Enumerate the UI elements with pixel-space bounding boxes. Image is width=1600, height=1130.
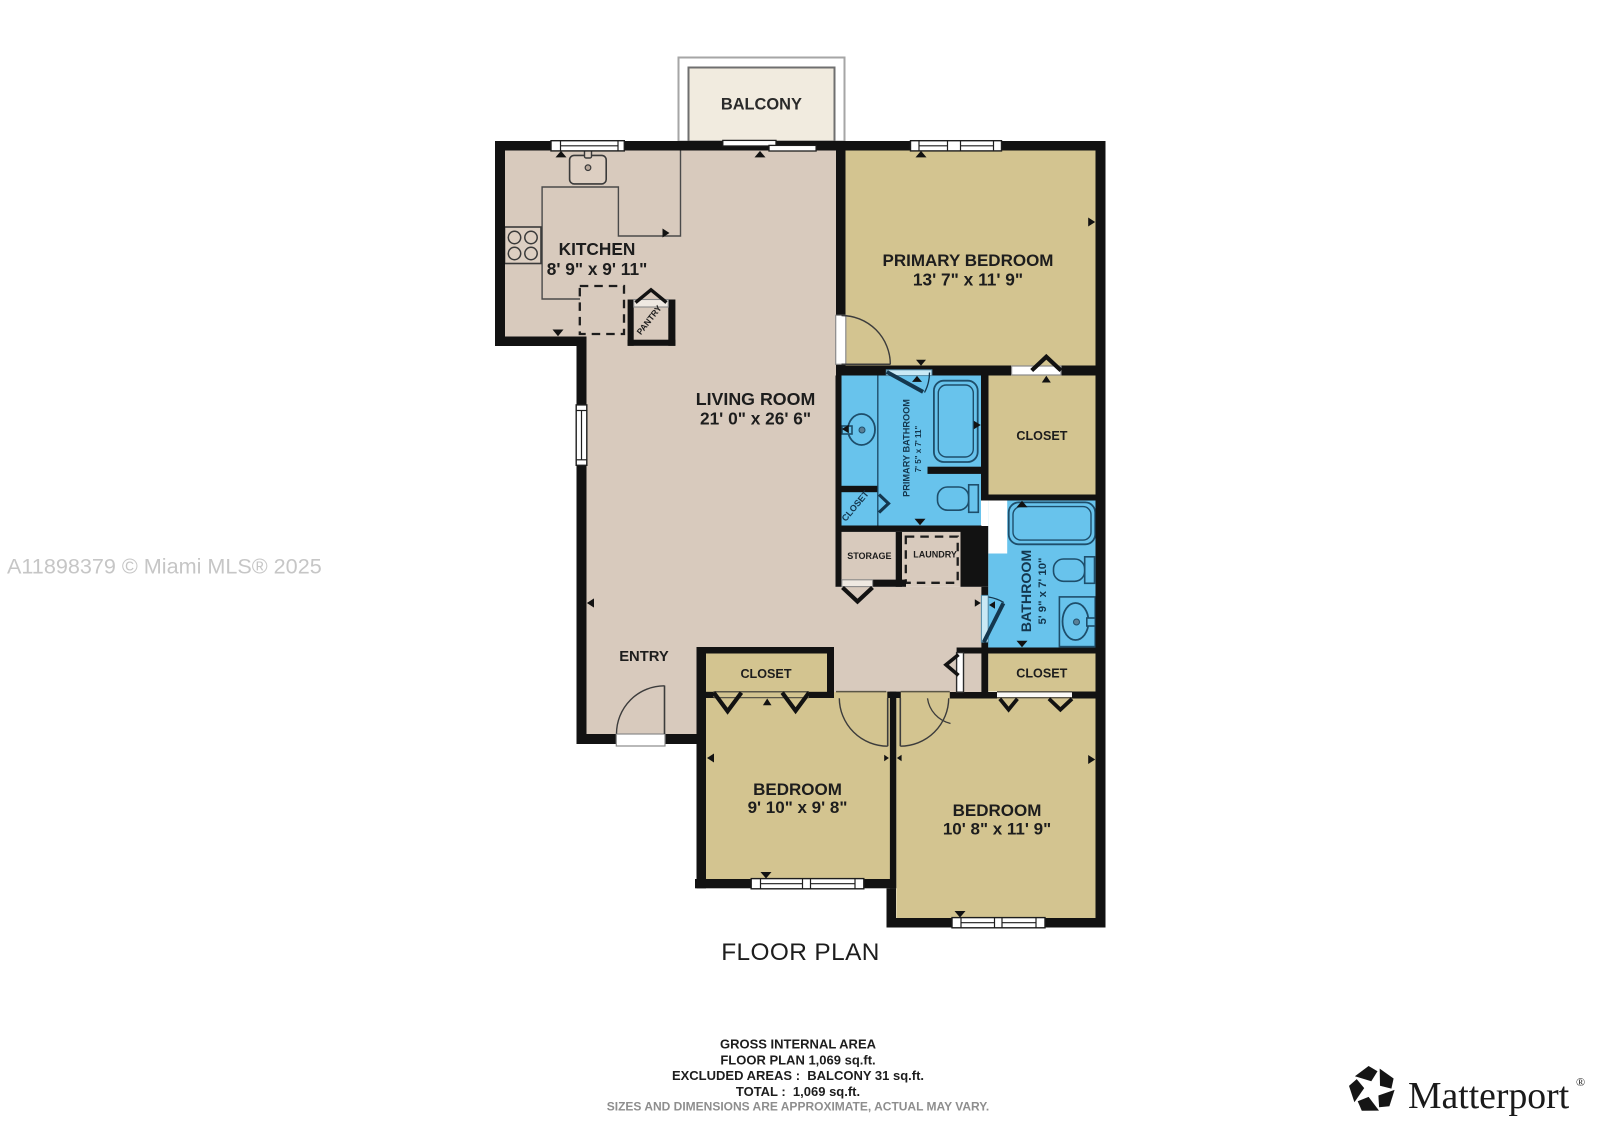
svg-text:9' 10" x 9' 8": 9' 10" x 9' 8"	[748, 798, 848, 817]
svg-text:STORAGE: STORAGE	[847, 551, 891, 561]
svg-text:CLOSET: CLOSET	[1016, 667, 1067, 681]
svg-text:BALCONY: BALCONY	[721, 96, 802, 114]
svg-text:21' 0" x 26' 6": 21' 0" x 26' 6"	[700, 408, 811, 428]
svg-text:ENTRY: ENTRY	[619, 649, 669, 665]
svg-text:EXCLUDED AREAS : BALCONY 31 s: EXCLUDED AREAS : BALCONY 31 sq.ft.	[672, 1068, 924, 1083]
svg-text:8' 9" x 9' 11": 8' 9" x 9' 11"	[547, 259, 648, 279]
svg-text:PRIMARY BEDROOM: PRIMARY BEDROOM	[883, 251, 1054, 270]
svg-text:LIVING ROOM: LIVING ROOM	[696, 389, 816, 409]
svg-text:LAUNDRY: LAUNDRY	[913, 550, 957, 560]
svg-text:®: ®	[1576, 1075, 1585, 1089]
svg-text:FLOOR PLAN: FLOOR PLAN	[721, 939, 880, 966]
svg-text:CLOSET: CLOSET	[1016, 429, 1067, 443]
svg-text:FLOOR PLAN 1,069 sq.ft.: FLOOR PLAN 1,069 sq.ft.	[720, 1052, 875, 1067]
svg-text:5' 9" x 7' 10": 5' 9" x 7' 10"	[1037, 558, 1049, 625]
svg-text:KITCHEN: KITCHEN	[559, 239, 636, 259]
svg-text:CLOSET: CLOSET	[740, 667, 791, 681]
svg-text:SIZES AND DIMENSIONS ARE APPRO: SIZES AND DIMENSIONS ARE APPROXIMATE, AC…	[607, 1099, 990, 1113]
svg-text:BATHROOM: BATHROOM	[1019, 550, 1035, 633]
svg-text:7' 5" x 7' 11": 7' 5" x 7' 11"	[914, 426, 923, 473]
svg-text:10' 8" x 11' 9": 10' 8" x 11' 9"	[943, 819, 1051, 838]
svg-text:GROSS INTERNAL AREA: GROSS INTERNAL AREA	[720, 1037, 877, 1052]
svg-text:BEDROOM: BEDROOM	[953, 801, 1042, 820]
svg-text:Matterport: Matterport	[1408, 1075, 1570, 1117]
svg-text:BEDROOM: BEDROOM	[753, 780, 842, 799]
svg-text:13' 7" x 11' 9": 13' 7" x 11' 9"	[913, 269, 1023, 289]
svg-text:PRIMARY BATHROOM: PRIMARY BATHROOM	[902, 399, 912, 497]
svg-text:TOTAL : 1,069 sq.ft.: TOTAL : 1,069 sq.ft.	[736, 1084, 860, 1099]
svg-text:A11898379 © Miami MLS® 2025: A11898379 © Miami MLS® 2025	[7, 554, 322, 579]
